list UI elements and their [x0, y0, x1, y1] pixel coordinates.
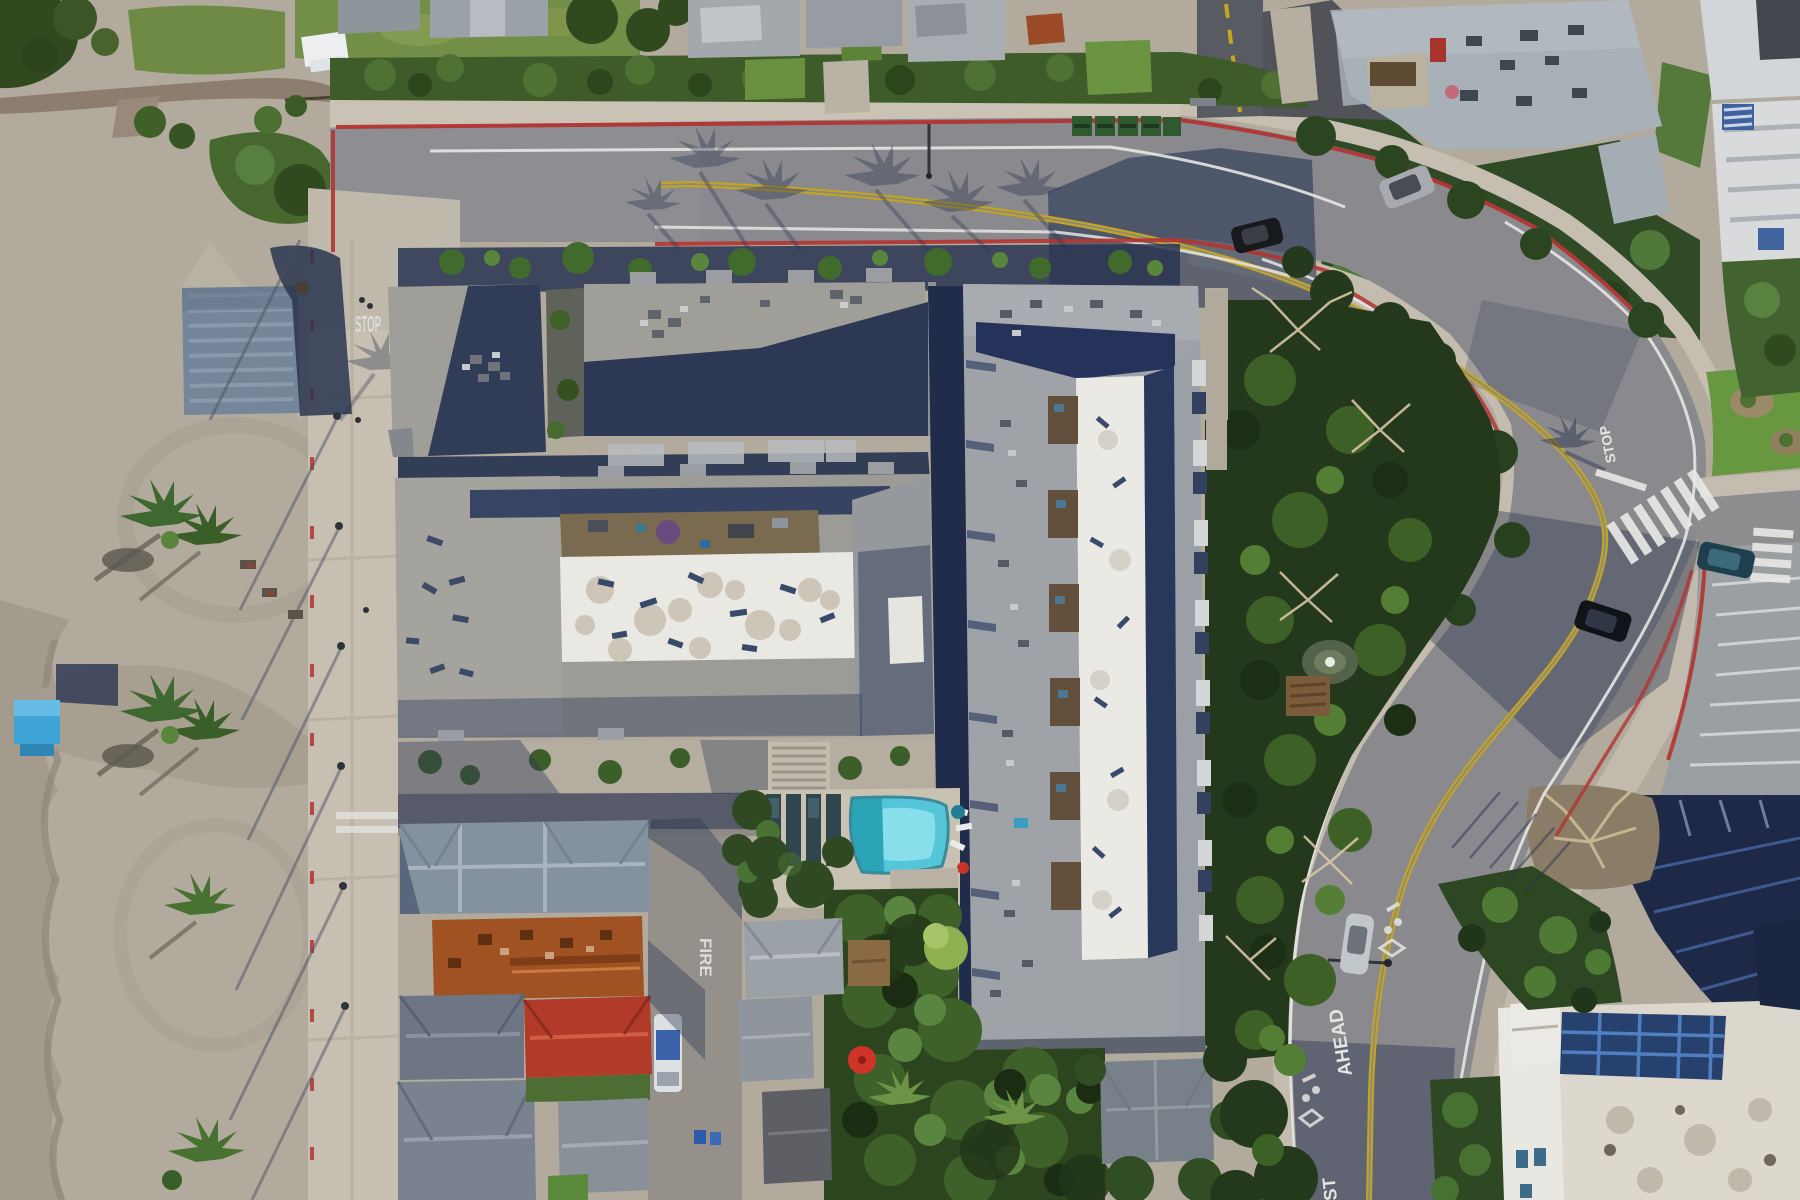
svg-text:ST: ST: [1319, 1177, 1341, 1200]
svg-text:STOP: STOP: [355, 311, 381, 337]
svg-text:FIRE: FIRE: [696, 938, 715, 977]
